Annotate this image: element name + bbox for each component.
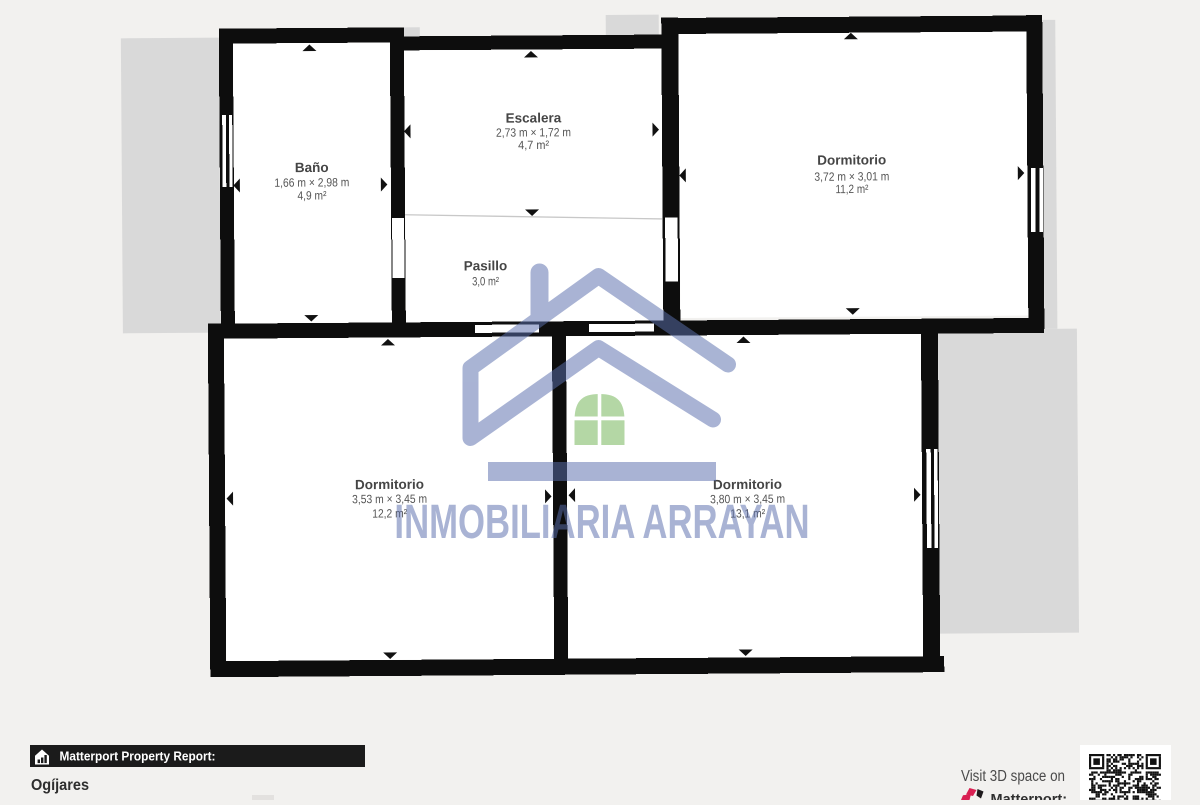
svg-text:Dormitorio: Dormitorio [817, 152, 886, 167]
svg-text:Matterport Property Report:: Matterport Property Report: [60, 750, 216, 764]
svg-text:Dormitorio: Dormitorio [713, 477, 782, 492]
svg-text:Ogíjares: Ogíjares [31, 777, 89, 794]
svg-text:11,2 m²: 11,2 m² [835, 182, 868, 196]
svg-text:Pasillo: Pasillo [464, 258, 508, 273]
svg-text:INMOBILIARIA ARRAYAN: INMOBILIARIA ARRAYAN [394, 494, 809, 548]
svg-text:4,9 m²: 4,9 m² [297, 188, 326, 202]
svg-text:Escalera: Escalera [506, 110, 562, 125]
svg-text:4,7 m²: 4,7 m² [518, 138, 549, 152]
svg-text:Visit 3D space on: Visit 3D space on [961, 768, 1065, 785]
svg-text:Dormitorio: Dormitorio [355, 477, 424, 492]
svg-text:Baño: Baño [295, 160, 329, 175]
svg-text:3,0 m²: 3,0 m² [472, 274, 499, 288]
svg-text:Matterport:: Matterport: [991, 792, 1068, 800]
